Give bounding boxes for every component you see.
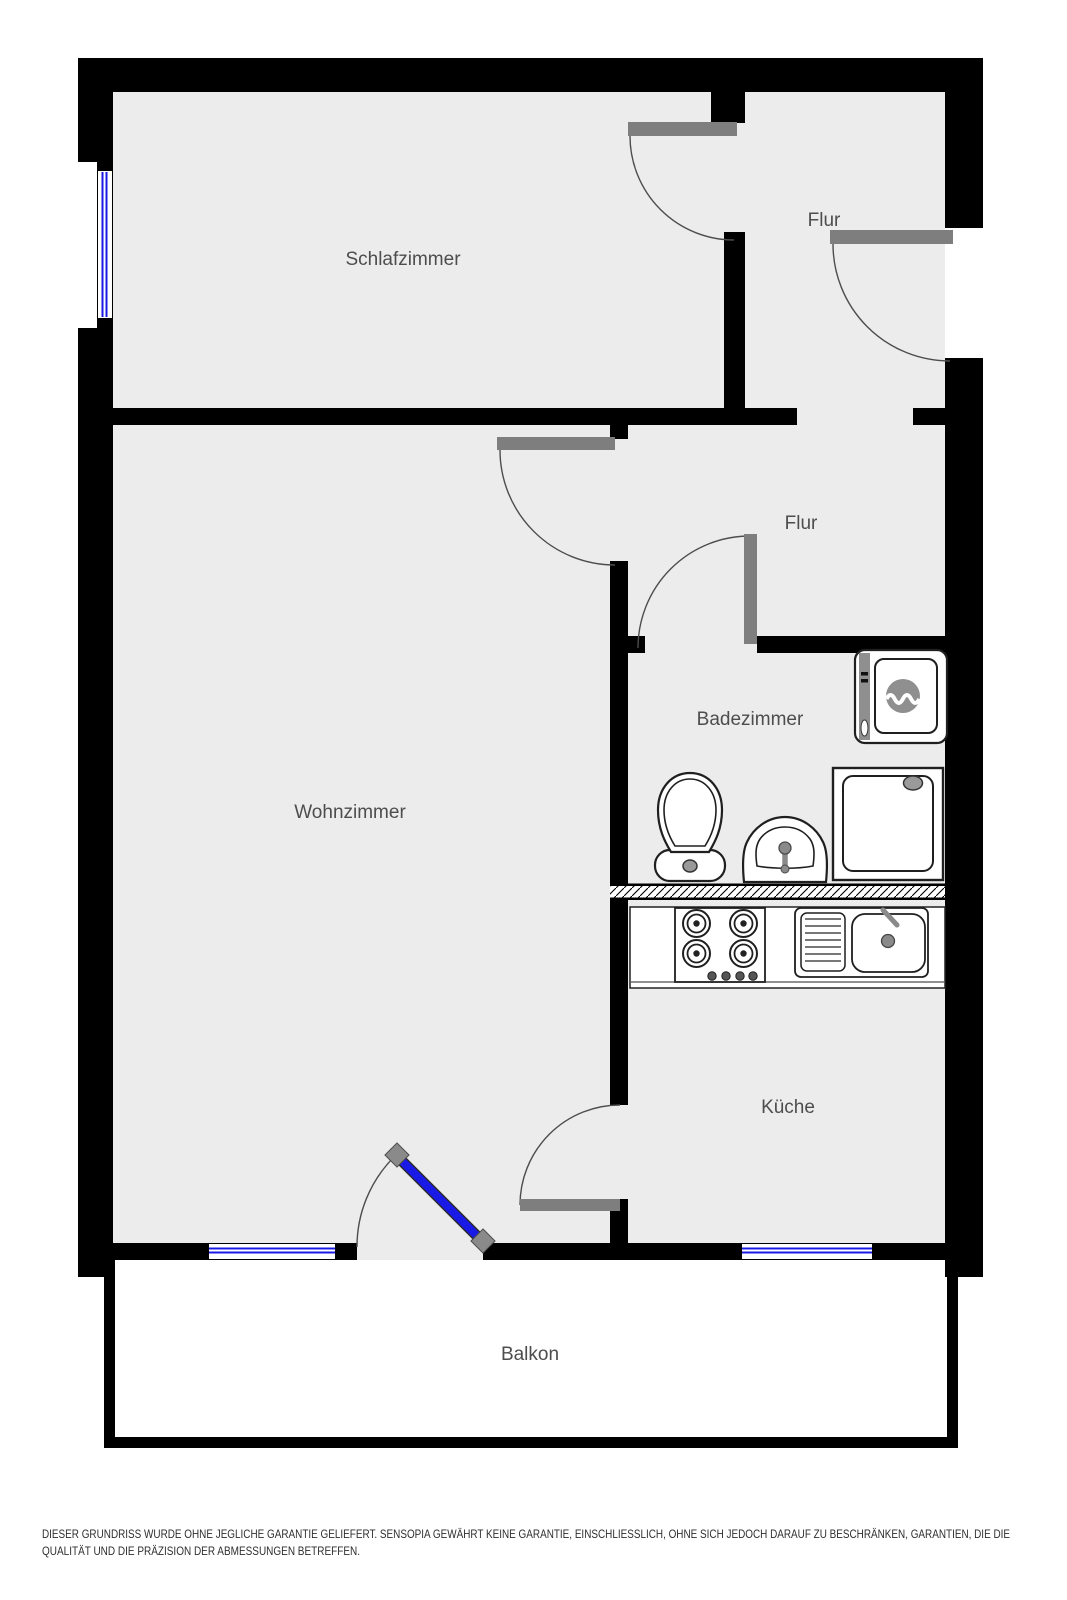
wall-badezimmer-top-left — [610, 636, 645, 653]
window-kueche — [730, 1243, 884, 1260]
shower-icon — [833, 768, 943, 880]
apartment-interior — [113, 91, 945, 1243]
label-flur-unten: Flur — [785, 513, 818, 534]
faucet — [779, 842, 791, 854]
wall-bottom-seg2 — [347, 1243, 357, 1260]
stove-icon — [675, 908, 765, 982]
wall-bottom-seg1 — [78, 1243, 197, 1260]
disclaimer-line1: DIESER GRUNDRISS WURDE OHNE JEGLICHE GAR… — [42, 1527, 1010, 1541]
wall-schlafzimmer-flur — [724, 232, 745, 408]
disclaimer: DIESER GRUNDRISS WURDE OHNE JEGLICHE GAR… — [42, 1527, 1010, 1558]
window-glass — [102, 172, 104, 317]
balcony-wall-left — [104, 1258, 115, 1448]
disclaimer-line2: QUALITÄT UND DIE PRÄZISION DER ABMESSUNG… — [42, 1544, 360, 1558]
balcony-door-threshold — [357, 1243, 483, 1260]
door-leaf — [744, 534, 757, 644]
faucet — [882, 935, 895, 948]
wall-schlafzimmer-bottom — [78, 408, 797, 425]
wall-left-lower — [78, 328, 113, 1277]
burner — [683, 940, 710, 967]
label-wohnzimmer: Wohnzimmer — [294, 802, 406, 823]
window-glass — [106, 172, 108, 317]
hatched-wall — [610, 884, 945, 901]
wall-right-upper — [945, 58, 983, 228]
label-flur-oben: Flur — [808, 210, 841, 231]
window-glass — [742, 1248, 872, 1250]
balcony-wall-bottom — [104, 1437, 958, 1448]
toilet-icon — [655, 773, 725, 881]
window-wohnzimmer — [197, 1243, 347, 1260]
wall-bottom-seg4 — [884, 1243, 948, 1260]
wall-bottom-seg3 — [483, 1243, 730, 1260]
label-kueche: Küche — [761, 1097, 815, 1118]
window-schlafzimmer — [97, 161, 113, 328]
burner — [730, 910, 757, 937]
label-balkon: Balkon — [501, 1344, 559, 1365]
door-leaf — [628, 122, 737, 136]
label-schlafzimmer: Schlafzimmer — [345, 249, 461, 270]
washing-machine-icon — [855, 650, 947, 743]
label-badezimmer: Badezimmer — [697, 709, 804, 730]
burner — [683, 910, 710, 937]
window-glass — [742, 1252, 872, 1254]
wall-wohnzimmer-flur-stub — [610, 425, 628, 439]
wall-flur-stub-right — [913, 408, 945, 425]
balcony-wall-right — [947, 1260, 958, 1448]
wall-top — [78, 58, 983, 92]
window-glass — [209, 1248, 335, 1250]
kitchen-sink-icon — [795, 908, 928, 977]
wall-right-lower — [945, 358, 983, 1277]
door-leaf — [520, 1199, 620, 1211]
floor-plan: Schlafzimmer Flur Flur Wohnzimmer Badezi… — [0, 0, 1067, 1600]
burner — [730, 940, 757, 967]
door-leaf — [497, 437, 615, 450]
door-leaf — [830, 230, 953, 244]
window-glass — [209, 1252, 335, 1254]
wall-schlafzimmer-flur-stub — [711, 91, 745, 123]
shower-drain — [904, 776, 923, 790]
wall-left-upper — [78, 58, 113, 162]
